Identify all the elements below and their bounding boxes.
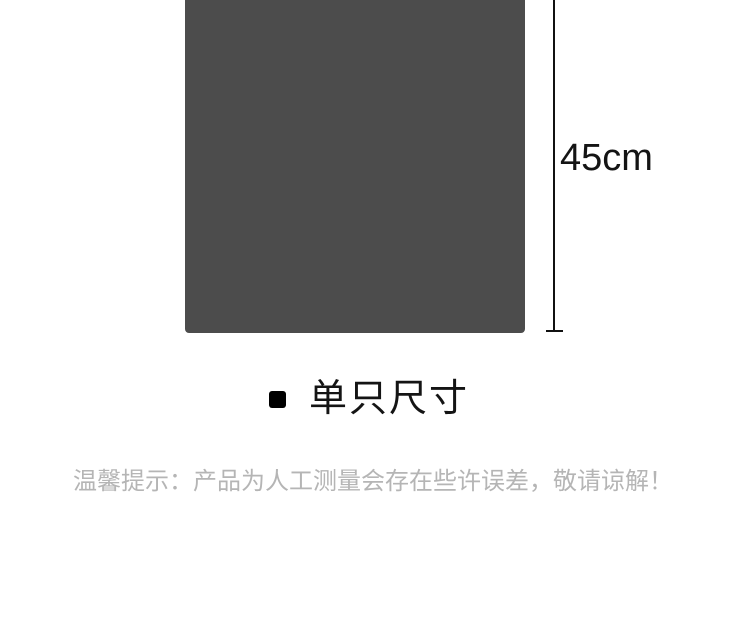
measurement-disclaimer-note: 温馨提示：产品为人工测量会存在些许误差，敬请谅解！: [73, 468, 673, 497]
section-title: 单只尺寸: [309, 379, 469, 421]
product-image-swatch: [185, 0, 525, 333]
dimension-line-vertical: [553, 0, 555, 332]
dimension-line-end-tick: [546, 330, 563, 332]
height-measurement-label: 45cm: [560, 136, 653, 182]
section-bullet-square-icon: [269, 391, 286, 408]
size-guide-page: 45cm 单只尺寸 温馨提示：产品为人工测量会存在些许误差，敬请谅解！: [0, 0, 750, 625]
